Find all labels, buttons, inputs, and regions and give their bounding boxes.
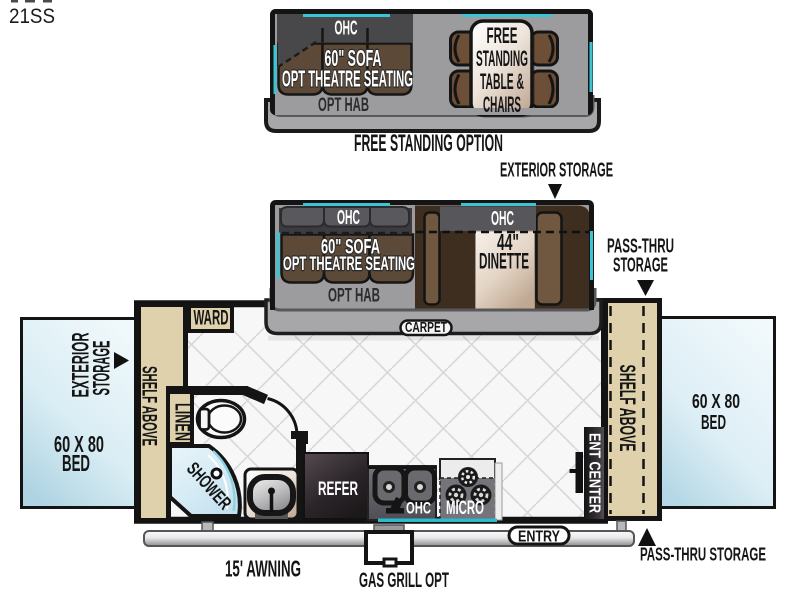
- svg-text:DINETTE: DINETTE: [479, 249, 529, 274]
- svg-text:FREE: FREE: [487, 23, 518, 48]
- svg-text:OPT THEATRE SEATING: OPT THEATRE SEATING: [283, 254, 415, 275]
- svg-text:GAS GRILL OPT: GAS GRILL OPT: [359, 569, 449, 592]
- svg-text:CHAIRS: CHAIRS: [483, 92, 521, 117]
- svg-text:OHC: OHC: [337, 207, 360, 229]
- svg-text:OPT THEATRE SEATING: OPT THEATRE SEATING: [282, 66, 413, 92]
- svg-text:60 X 80: 60 X 80: [692, 390, 740, 413]
- svg-text:PASS-THRU STORAGE: PASS-THRU STORAGE: [640, 544, 766, 565]
- svg-text:REFER: REFER: [318, 479, 358, 500]
- svg-text:SHELF ABOVE: SHELF ABOVE: [615, 365, 640, 452]
- svg-text:TABLE &: TABLE &: [480, 69, 524, 94]
- svg-text:OHC: OHC: [406, 499, 431, 518]
- svg-text:MICRO: MICRO: [446, 498, 484, 519]
- svg-text:STORAGE: STORAGE: [613, 255, 668, 277]
- svg-text:ENTRY: ENTRY: [518, 529, 560, 546]
- svg-text:LINEN: LINEN: [171, 403, 194, 441]
- svg-text:OHC: OHC: [491, 208, 514, 230]
- svg-text:STORAGE: STORAGE: [89, 341, 116, 396]
- svg-text:EXTERIOR STORAGE: EXTERIOR STORAGE: [500, 160, 613, 182]
- svg-text:CARPET: CARPET: [405, 319, 447, 336]
- svg-text:15' AWNING: 15' AWNING: [225, 556, 301, 582]
- svg-text:21SS: 21SS: [9, 5, 55, 28]
- svg-text:FREE STANDING OPTION: FREE STANDING OPTION: [354, 130, 503, 157]
- svg-text:BED: BED: [701, 411, 726, 434]
- svg-text:BED: BED: [62, 450, 90, 476]
- svg-text:STANDING: STANDING: [476, 46, 528, 71]
- svg-text:SHELF ABOVE: SHELF ABOVE: [138, 366, 161, 446]
- svg-text:OHC: OHC: [335, 18, 358, 40]
- svg-text:OPT HAB: OPT HAB: [318, 95, 369, 116]
- svg-text:OPT HAB: OPT HAB: [328, 286, 380, 307]
- svg-text:ENT CENTER: ENT CENTER: [586, 433, 603, 513]
- svg-text:WARD: WARD: [194, 307, 229, 330]
